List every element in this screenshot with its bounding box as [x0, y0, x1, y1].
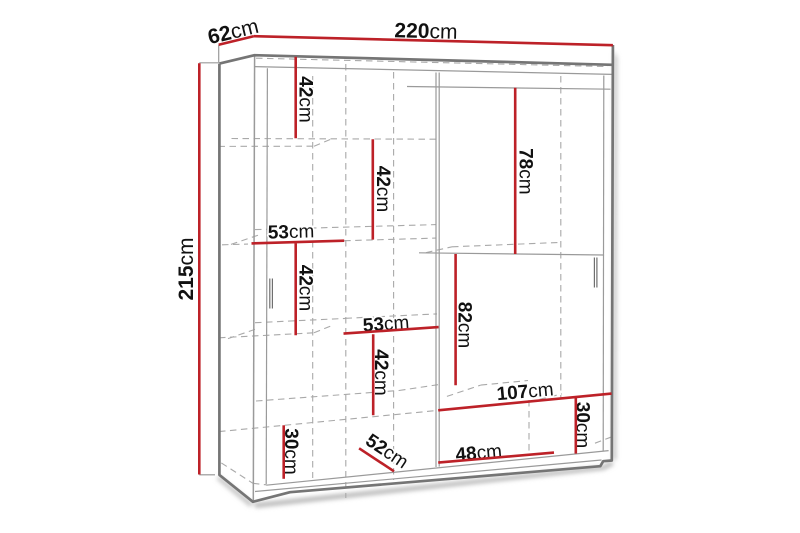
svg-text:78cm: 78cm	[514, 148, 535, 194]
svg-text:42cm: 42cm	[295, 265, 316, 311]
svg-text:215cm: 215cm	[175, 237, 198, 300]
svg-text:42cm: 42cm	[295, 76, 316, 122]
svg-text:42cm: 42cm	[372, 166, 393, 212]
svg-text:62cm: 62cm	[206, 15, 261, 49]
svg-text:48cm: 48cm	[455, 441, 503, 466]
svg-text:53cm: 53cm	[268, 221, 315, 243]
